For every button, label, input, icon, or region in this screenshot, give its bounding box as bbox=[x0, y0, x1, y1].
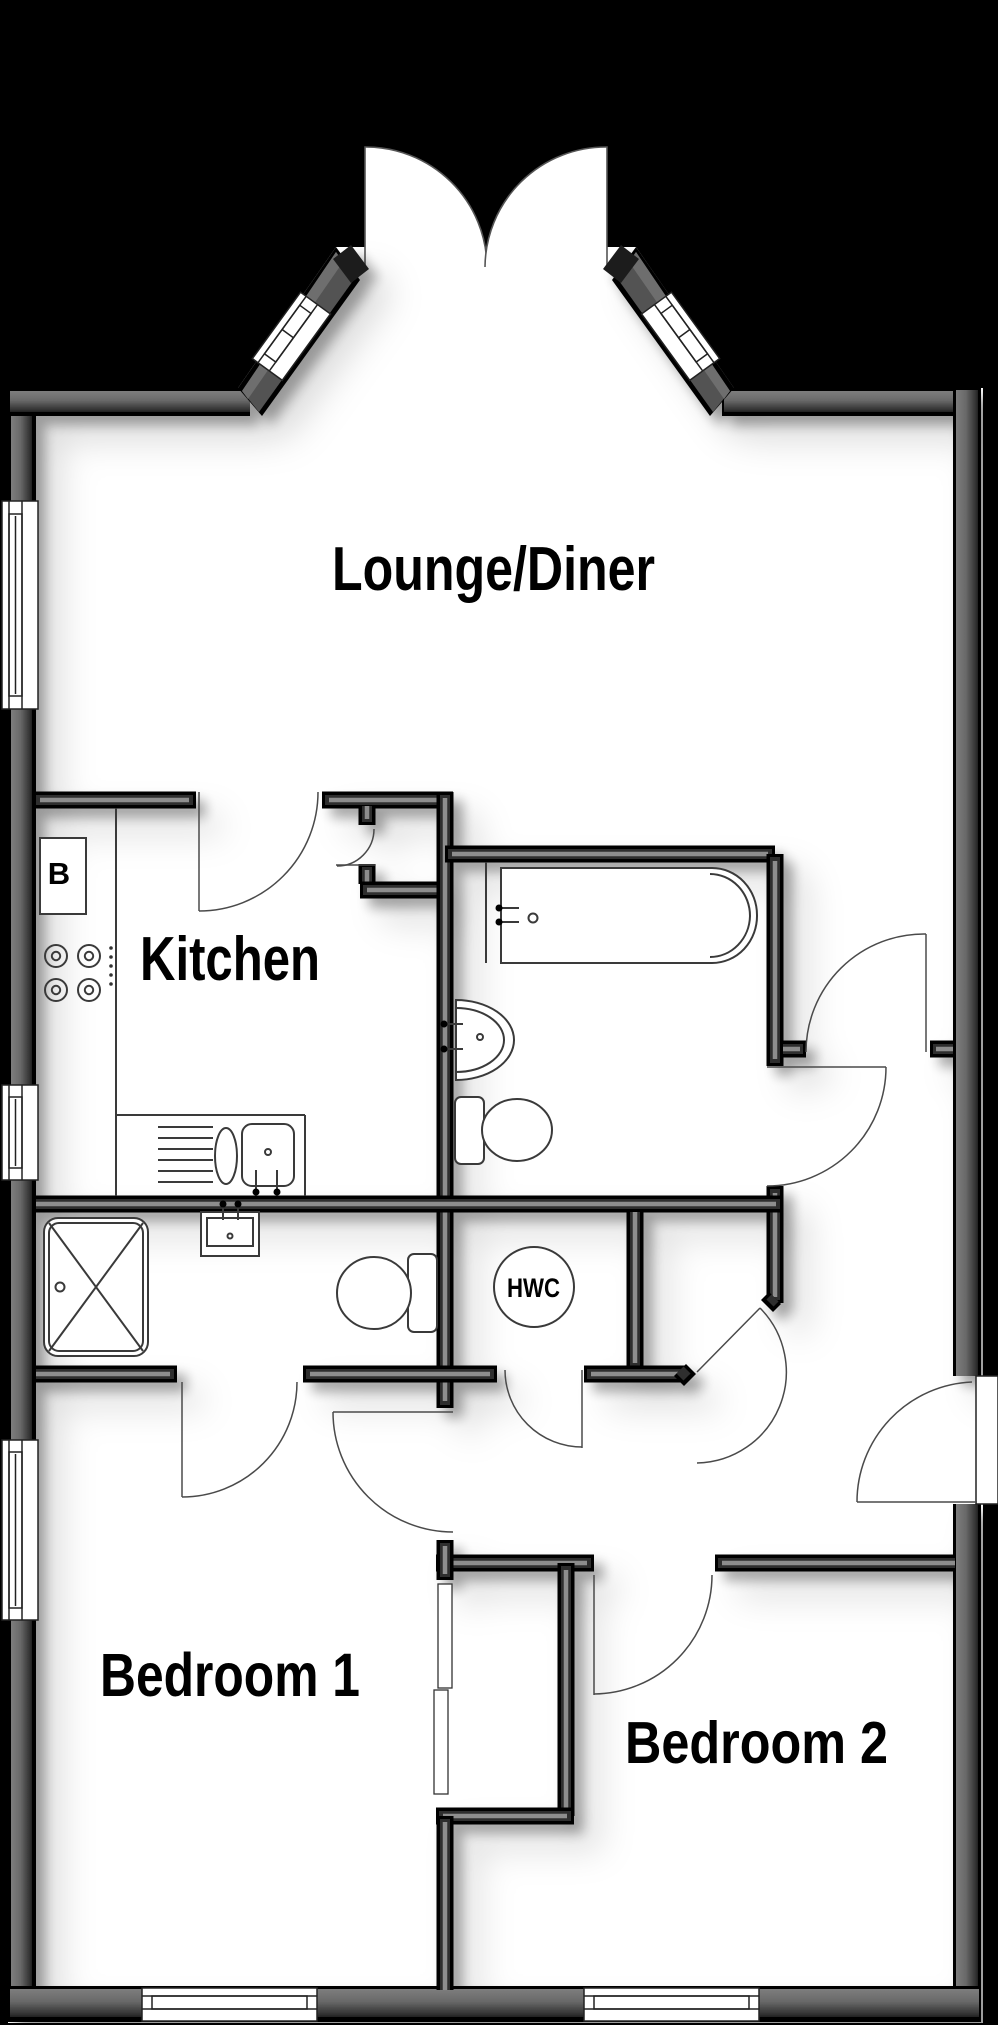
svg-text:Bedroom 1: Bedroom 1 bbox=[100, 1641, 360, 1709]
svg-text:Lounge/Diner: Lounge/Diner bbox=[332, 535, 655, 604]
svg-text:B: B bbox=[48, 856, 70, 891]
svg-text:Bedroom 2: Bedroom 2 bbox=[625, 1710, 888, 1776]
svg-text:HWC: HWC bbox=[507, 1273, 560, 1303]
svg-text:Kitchen: Kitchen bbox=[140, 925, 320, 994]
